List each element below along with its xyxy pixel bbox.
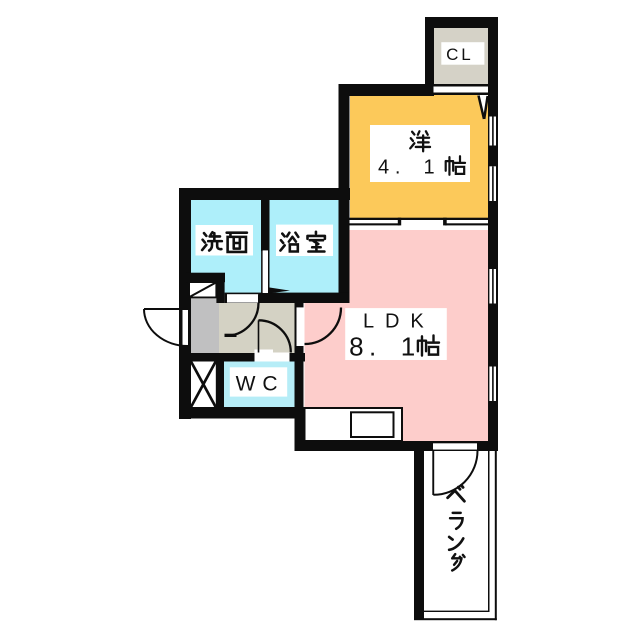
svg-text:4: 4 <box>378 157 389 179</box>
svg-text:1: 1 <box>423 157 434 179</box>
svg-text:W: W <box>236 373 256 396</box>
svg-text:8: 8 <box>349 332 363 362</box>
svg-text:C: C <box>262 373 277 396</box>
svg-text:C: C <box>446 45 458 64</box>
svg-text:1: 1 <box>401 332 415 362</box>
svg-text:.: . <box>369 332 376 362</box>
svg-text:D: D <box>385 311 399 333</box>
svg-text:L: L <box>461 45 470 64</box>
svg-text:L: L <box>363 311 374 333</box>
svg-text:.: . <box>395 157 401 179</box>
svg-text:K: K <box>410 311 424 333</box>
